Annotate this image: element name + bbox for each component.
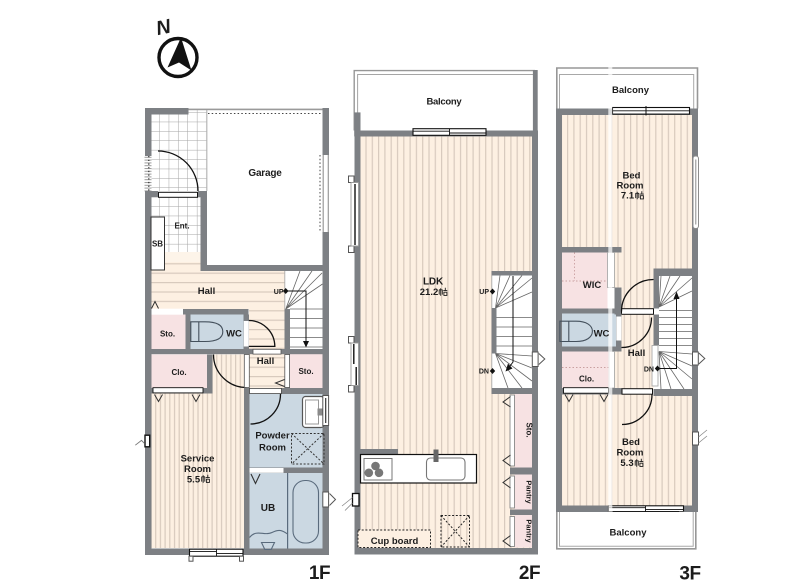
svg-text:Hall: Hall — [198, 286, 215, 297]
svg-text:Room: Room — [259, 443, 286, 454]
svg-text:Powder: Powder — [255, 431, 290, 442]
svg-text:WC: WC — [226, 329, 242, 340]
svg-text:Cup board: Cup board — [371, 536, 419, 547]
svg-text:DN: DN — [644, 367, 654, 374]
svg-text:Bed: Bed — [622, 437, 640, 448]
svg-text:Service: Service — [181, 454, 215, 465]
svg-text:WC: WC — [594, 329, 610, 340]
svg-text:Balcony: Balcony — [610, 528, 648, 539]
svg-text:Hall: Hall — [257, 356, 274, 367]
svg-text:Sto.: Sto. — [298, 367, 313, 376]
svg-text:UP: UP — [479, 289, 489, 296]
svg-text:Pantry: Pantry — [525, 480, 534, 504]
svg-text:Hall: Hall — [628, 348, 645, 359]
svg-text:2F: 2F — [519, 563, 540, 584]
svg-text:WIC: WIC — [583, 280, 602, 291]
svg-text:DN: DN — [479, 369, 489, 376]
svg-text:UB: UB — [261, 503, 275, 514]
svg-text:Sto.: Sto. — [160, 330, 175, 339]
svg-text:Room: Room — [184, 464, 211, 475]
svg-text:UP: UP — [274, 289, 284, 296]
svg-text:Pantry: Pantry — [525, 519, 534, 543]
svg-text:Balcony: Balcony — [426, 97, 462, 108]
svg-text:21.2: 21.2 — [420, 287, 439, 298]
svg-text:Garage: Garage — [248, 168, 282, 179]
svg-text:3F: 3F — [679, 564, 700, 585]
svg-text:Room: Room — [617, 448, 644, 459]
svg-text:Sto.: Sto. — [525, 422, 534, 437]
svg-text:Clo.: Clo. — [579, 375, 594, 384]
svg-text:5.3: 5.3 — [620, 458, 633, 469]
svg-text:SB: SB — [152, 240, 163, 249]
svg-text:LDK: LDK — [423, 277, 444, 288]
svg-text:Clo.: Clo. — [171, 368, 186, 377]
svg-text:Balcony: Balcony — [612, 85, 650, 96]
svg-text:1F: 1F — [309, 563, 330, 584]
svg-text:5.5: 5.5 — [187, 475, 201, 486]
svg-text:7.1: 7.1 — [621, 191, 635, 202]
svg-text:Ent.: Ent. — [174, 222, 189, 231]
